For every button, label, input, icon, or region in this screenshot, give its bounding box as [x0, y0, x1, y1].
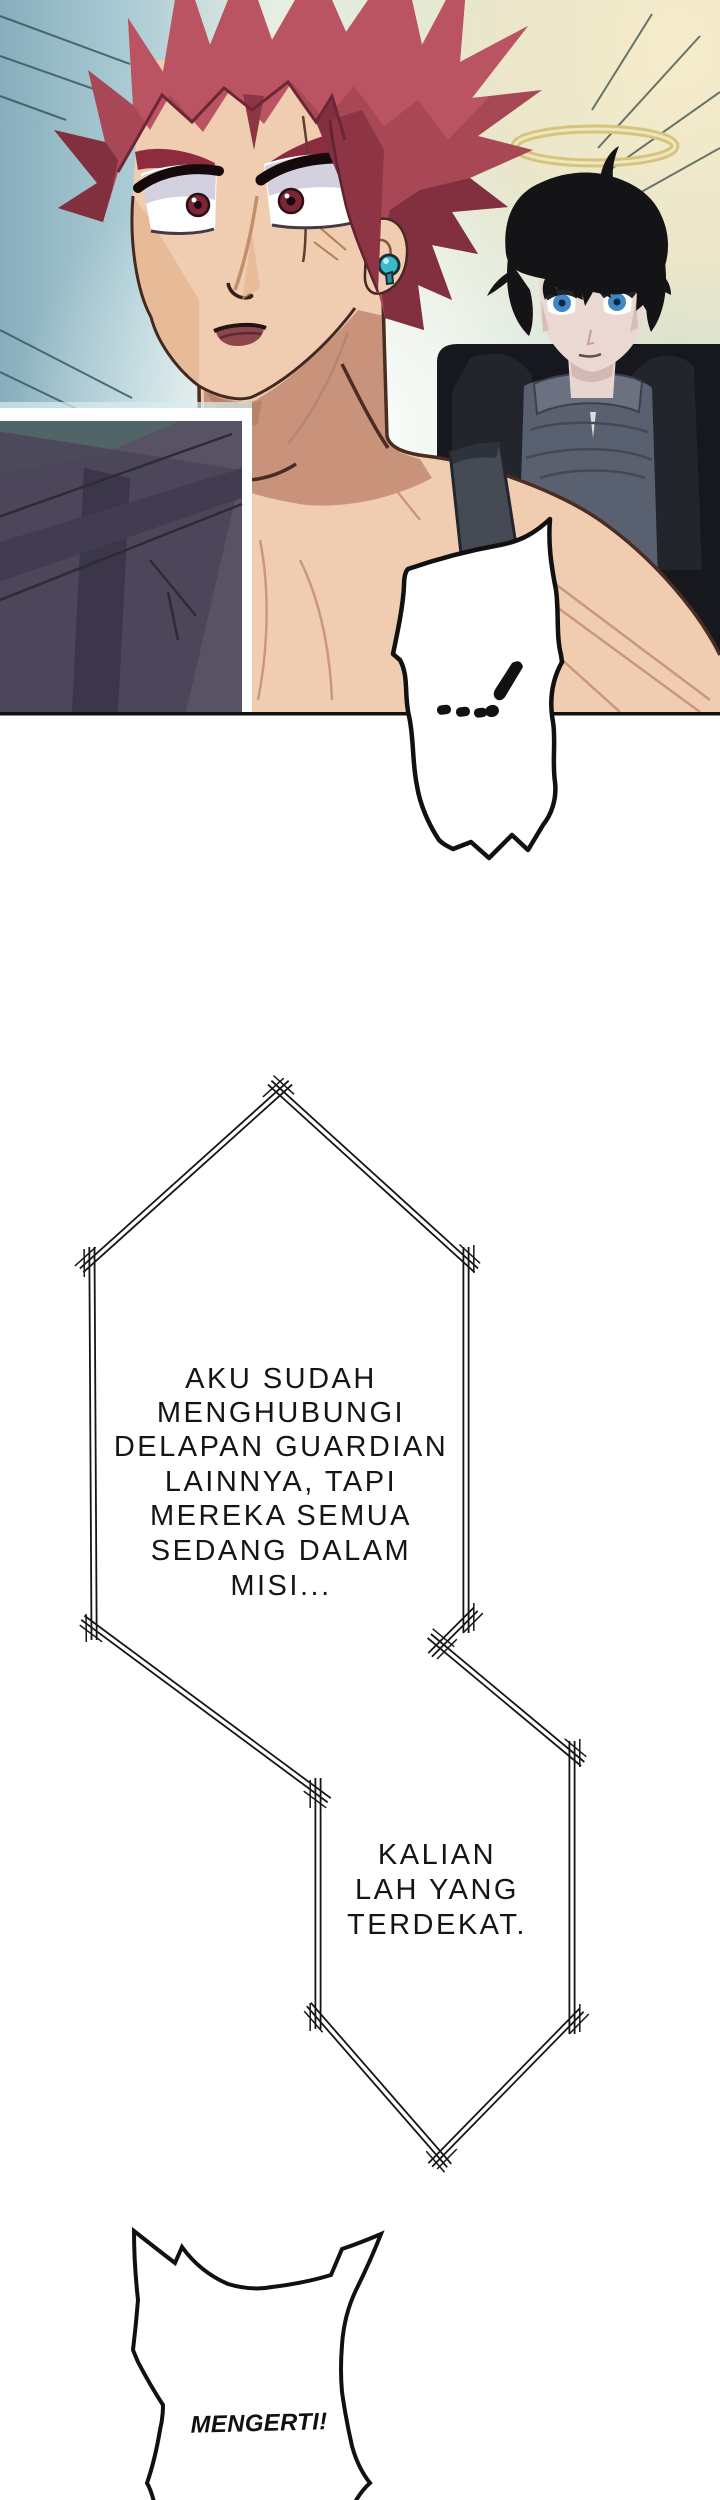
svg-text:AKU SUDAH: AKU SUDAH: [185, 1363, 377, 1395]
svg-text:MENGERTI!: MENGERTI!: [190, 2408, 328, 2439]
svg-text:MISI...: MISI...: [230, 1570, 331, 1602]
svg-text:SEDANG DALAM: SEDANG DALAM: [151, 1535, 411, 1567]
svg-text:MENGHUBUNGI: MENGHUBUNGI: [157, 1397, 405, 1429]
svg-text:MEREKA SEMUA: MEREKA SEMUA: [150, 1500, 412, 1532]
svg-text:KALIAN: KALIAN: [378, 1839, 496, 1871]
svg-text:LAH YANG: LAH YANG: [355, 1874, 519, 1906]
svg-text:LAINNYA, TAPI: LAINNYA, TAPI: [165, 1466, 397, 1498]
svg-text:TERDEKAT.: TERDEKAT.: [347, 1909, 527, 1941]
svg-text:DELAPAN GUARDIAN: DELAPAN GUARDIAN: [114, 1431, 448, 1463]
